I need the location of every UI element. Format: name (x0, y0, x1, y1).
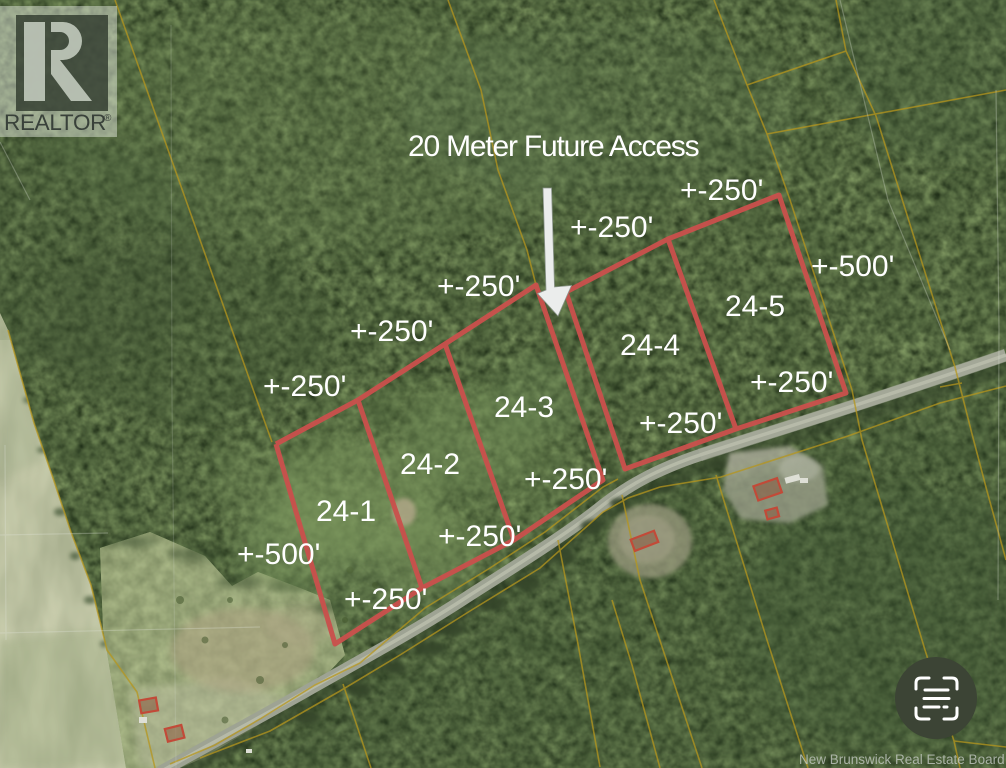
svg-text:REALTOR: REALTOR (4, 110, 106, 135)
svg-text:24-5: 24-5 (725, 290, 785, 323)
svg-text:+-250': +-250' (344, 583, 427, 616)
svg-text:+-500': +-500' (811, 250, 894, 283)
svg-text:24-1: 24-1 (316, 495, 376, 528)
svg-text:+-250': +-250' (438, 520, 521, 553)
svg-text:+-250': +-250' (263, 370, 346, 403)
svg-text:+-250': +-250' (350, 315, 433, 348)
svg-text:New Brunswick Real Estate Boar: New Brunswick Real Estate Board (799, 752, 1005, 767)
svg-text:+-250': +-250' (750, 366, 833, 399)
svg-text:20 Meter Future Access: 20 Meter Future Access (408, 130, 699, 163)
svg-text:24-3: 24-3 (494, 391, 554, 424)
svg-text:+-250': +-250' (570, 211, 653, 244)
svg-text:+-250': +-250' (437, 270, 520, 303)
svg-text:®: ® (104, 113, 112, 124)
svg-text:24-2: 24-2 (400, 448, 460, 481)
svg-text:+-500': +-500' (237, 538, 320, 571)
svg-text:24-4: 24-4 (620, 329, 680, 362)
svg-text:+-250': +-250' (524, 463, 607, 496)
svg-text:+-250': +-250' (639, 407, 722, 440)
svg-text:+-250': +-250' (680, 174, 763, 207)
